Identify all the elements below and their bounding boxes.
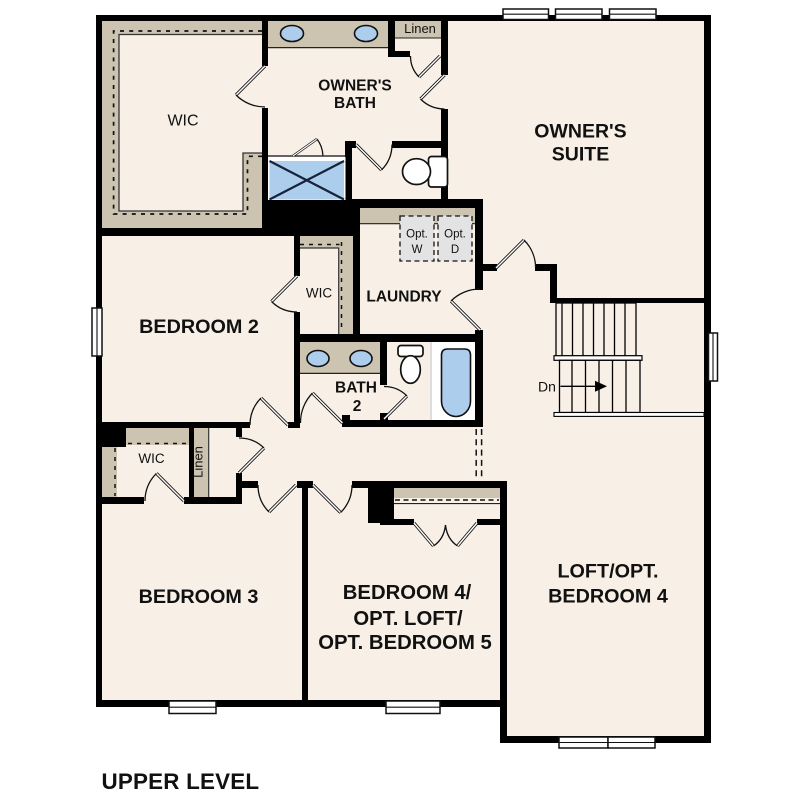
svg-text:WIC: WIC [306,286,332,301]
svg-text:OWNER'S: OWNER'S [534,120,626,142]
svg-text:D: D [451,244,459,256]
svg-text:BATH: BATH [335,380,377,397]
svg-text:OWNER'S: OWNER'S [318,78,391,95]
svg-text:SUITE: SUITE [552,143,609,165]
svg-text:WIC: WIC [167,113,198,130]
svg-text:UPPER LEVEL: UPPER LEVEL [102,769,260,794]
svg-text:WIC: WIC [138,451,164,466]
svg-text:BEDROOM 4: BEDROOM 4 [548,585,668,607]
svg-text:LOFT/OPT.: LOFT/OPT. [557,560,658,582]
svg-text:BATH: BATH [334,95,376,112]
svg-text:Dn: Dn [538,379,556,395]
svg-text:Opt.: Opt. [406,229,428,241]
svg-text:OPT. LOFT/: OPT. LOFT/ [353,608,463,630]
svg-text:Linen: Linen [191,446,206,478]
svg-text:OPT. BEDROOM 5: OPT. BEDROOM 5 [318,632,492,654]
svg-text:BEDROOM 2: BEDROOM 2 [139,316,259,338]
svg-text:BEDROOM 4/: BEDROOM 4/ [343,582,472,604]
svg-text:LAUNDRY: LAUNDRY [366,289,442,306]
svg-text:2: 2 [353,398,362,415]
svg-text:Linen: Linen [404,21,436,36]
svg-text:W: W [412,244,423,256]
svg-text:BEDROOM 3: BEDROOM 3 [139,586,259,608]
svg-text:Opt.: Opt. [444,229,466,241]
